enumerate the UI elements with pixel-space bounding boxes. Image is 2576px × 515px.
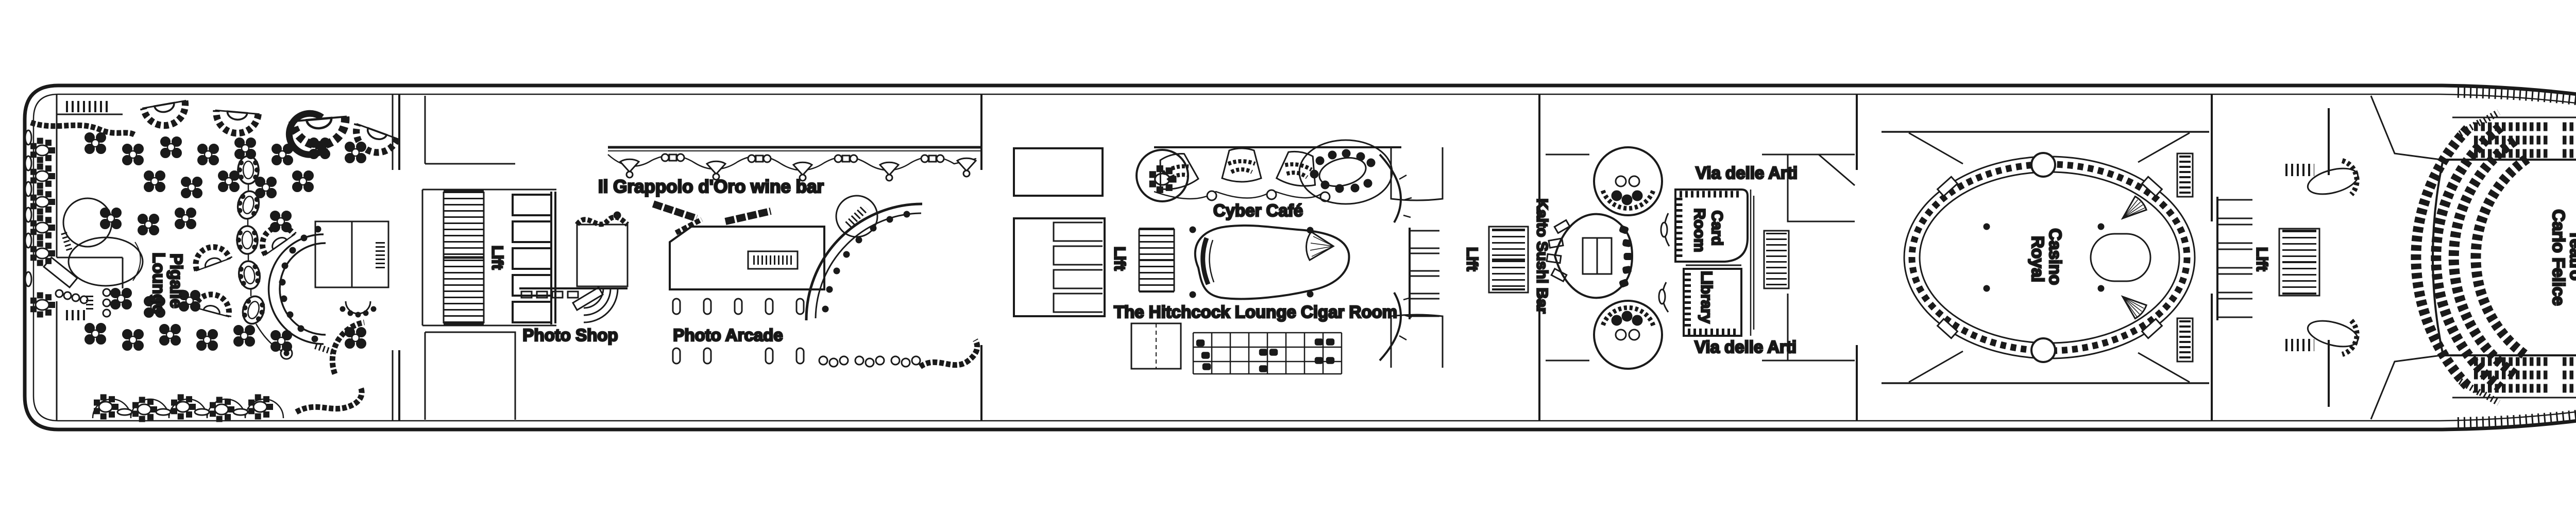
core2-room-bottom bbox=[1131, 323, 1181, 369]
kaito-round-room-top bbox=[1594, 147, 1662, 215]
foyer-walls bbox=[2371, 96, 2441, 419]
hitchcock-label: The Hitchcock Lounge Cigar Room bbox=[1114, 302, 1397, 321]
hull-outer-line bbox=[25, 85, 2576, 430]
cigar-room-tables-grid bbox=[1193, 333, 1342, 374]
core3-room-top bbox=[1391, 147, 1443, 200]
stern-walls bbox=[57, 94, 123, 421]
corridor-wall-right bbox=[1751, 190, 1754, 336]
deck-plan-canvas: Pigalle Lounge Lift bbox=[0, 0, 2576, 515]
lift-bank-3 bbox=[1410, 228, 1439, 319]
serpentine-bench-icon bbox=[296, 387, 362, 412]
kaito-sushi-label: Kaito Sushi Bar bbox=[1534, 198, 1551, 314]
casino-royal-label: Casino Royal bbox=[2028, 228, 2065, 289]
lift-bank-2 bbox=[1054, 222, 1103, 312]
lift-bank-4 bbox=[2217, 197, 2252, 320]
core2-block bbox=[1014, 218, 1105, 316]
lift-label-3: Lift bbox=[1464, 247, 1481, 271]
photo-shop-display-arcs bbox=[573, 287, 618, 322]
core3-room-bottom bbox=[1391, 315, 1443, 368]
photo-arcade-room bbox=[670, 227, 824, 289]
library-label: Library bbox=[1698, 271, 1715, 323]
transverse-bulkheads bbox=[399, 94, 2576, 421]
lift-label-4: Lift bbox=[2253, 247, 2270, 271]
lobby-funnel-walls bbox=[1380, 154, 1401, 360]
cyber-conference-table bbox=[1299, 140, 1392, 204]
foyer-bar-top bbox=[2303, 158, 2362, 205]
photo-shop-counter bbox=[577, 212, 628, 286]
teatro-label: Teatro Carlo Felice bbox=[2549, 209, 2576, 305]
lift-label-2: Lift bbox=[1111, 247, 1128, 271]
serpentine-bench-icon bbox=[920, 340, 977, 367]
lift-core-1: Lift bbox=[422, 96, 556, 420]
arcade-small-displays bbox=[819, 356, 920, 367]
lift-label-1: Lift bbox=[489, 246, 506, 270]
port-side-tables-group bbox=[25, 130, 55, 317]
pigalle-lounge-area: Pigalle Lounge bbox=[25, 94, 398, 421]
casino-royal-area: Casino Royal bbox=[1882, 132, 2209, 383]
escalator-2 bbox=[1139, 229, 1174, 291]
lift-core-2: Lift bbox=[1014, 148, 1188, 369]
wine-bar-counters bbox=[653, 204, 771, 221]
wine-bar-label: Il Grappolo d'Oro wine bar bbox=[598, 177, 824, 197]
casino-inner-pit bbox=[2091, 234, 2150, 281]
pigalle-lounge-label: Pigalle Lounge bbox=[149, 252, 186, 314]
stairs-4 bbox=[1764, 231, 1789, 288]
bottom-scallop-tables-row bbox=[93, 395, 283, 421]
teatro-curved-seat-rows bbox=[2416, 127, 2527, 388]
starboard-rooms bbox=[1788, 154, 1855, 360]
serpentine-bench-icon bbox=[31, 123, 135, 135]
via-delle-arti-label-top: Via delle Arti bbox=[1696, 163, 1798, 182]
card-room-label: Card Room bbox=[1691, 209, 1725, 252]
foyer-bar-bottom bbox=[2303, 310, 2362, 357]
deck-plan-drawing: Pigalle Lounge Lift bbox=[0, 0, 2576, 515]
escalator-3 bbox=[1489, 227, 1528, 293]
card-library-area: Via delle Arti Via delle Arti Card Room … bbox=[1546, 154, 1855, 360]
photo-arcade-counter bbox=[748, 251, 798, 269]
kaito-sushi-area: Kaito Sushi Bar bbox=[1534, 147, 1663, 369]
lift-bank-1 bbox=[513, 192, 551, 324]
cyber-cafe-label: Cyber Café bbox=[1213, 201, 1303, 220]
lift-core-4: Lift bbox=[2217, 108, 2329, 407]
core2-room-top bbox=[1014, 148, 1103, 196]
via-delle-arti-label-bottom: Via delle Arti bbox=[1694, 337, 1797, 356]
teatro-area: Teatro Carlo Felice bbox=[2416, 103, 2576, 412]
sushi-chairs bbox=[1620, 226, 1632, 287]
kaito-round-room-bottom bbox=[1594, 301, 1662, 369]
stage-platform-oval bbox=[69, 237, 143, 286]
wine-bar-area: Il Grappolo d'Oro wine bar bbox=[598, 147, 981, 221]
cyber-cafe-area: Cyber Café bbox=[1153, 140, 1401, 220]
photo-arcade-label: Photo Arcade bbox=[673, 325, 783, 345]
hitchcock-sofa bbox=[1203, 238, 1208, 284]
photo-arcade-area: Photo Arcade bbox=[670, 196, 977, 367]
pigalle-stage-block bbox=[315, 221, 388, 317]
ship-hull bbox=[25, 85, 2576, 430]
hitchcock-lounge-outline bbox=[1195, 226, 1349, 299]
escalator-1 bbox=[444, 192, 484, 323]
photo-shop-label: Photo Shop bbox=[522, 325, 618, 345]
escalator-4 bbox=[2279, 229, 2319, 296]
lift-core-3: Lift bbox=[1380, 147, 1528, 368]
corridor-arcs-left bbox=[1659, 213, 1669, 312]
arcade-curved-counter bbox=[806, 196, 922, 320]
